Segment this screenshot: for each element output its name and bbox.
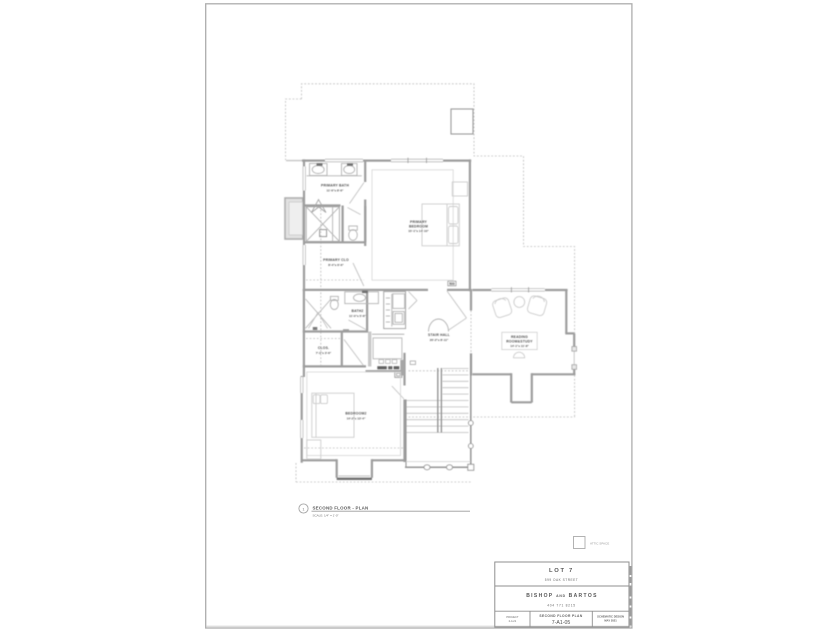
svg-text:PRIMARY BATH: PRIMARY BATH xyxy=(321,184,349,188)
svg-text:MAY 2021: MAY 2021 xyxy=(604,619,617,623)
svg-text:11'-6"x 8'-6": 11'-6"x 8'-6" xyxy=(327,188,345,192)
svg-text:2-4-21: 2-4-21 xyxy=(509,619,517,623)
svg-text:20'-2"x 8'-11": 20'-2"x 8'-11" xyxy=(430,338,449,342)
svg-text:14'-2"x 13'-4": 14'-2"x 13'-4" xyxy=(347,416,366,420)
svg-text:PRIMARY CLO: PRIMARY CLO xyxy=(323,258,349,262)
svg-text:599 OAK STREET: 599 OAK STREET xyxy=(545,578,578,582)
svg-text:8'-4"x 6'-6": 8'-4"x 6'-6" xyxy=(328,263,344,267)
svg-text:PROJECT: PROJECT xyxy=(506,615,519,619)
svg-text:ROOM&STUDY: ROOM&STUDY xyxy=(506,340,533,344)
svg-text:CLOS.: CLOS. xyxy=(318,346,329,350)
svg-text:READING: READING xyxy=(511,335,528,339)
svg-text:SCHEMATIC DESIGN: SCHEMATIC DESIGN xyxy=(597,615,624,619)
svg-text:SECOND FLOOR - PLAN: SECOND FLOOR - PLAN xyxy=(313,506,369,511)
svg-text:BISHOP AND BARTOS: BISHOP AND BARTOS xyxy=(526,593,598,599)
svg-text:7-A1-05: 7-A1-05 xyxy=(552,620,571,626)
svg-text:SECOND FLOOR PLAN: SECOND FLOOR PLAN xyxy=(539,614,582,618)
svg-text:7'-3"x 3'-6": 7'-3"x 3'-6" xyxy=(316,351,332,355)
svg-text:11'-0"x 5'-6": 11'-0"x 5'-6" xyxy=(349,314,367,318)
svg-text:SCALE: 1/4" = 1'-0": SCALE: 1/4" = 1'-0" xyxy=(313,514,339,518)
svg-text:BEDROOM: BEDROOM xyxy=(409,225,428,229)
svg-text:LOT 7: LOT 7 xyxy=(549,568,574,574)
svg-text:1: 1 xyxy=(302,506,305,511)
svg-text:ATTIC SPACE: ATTIC SPACE xyxy=(590,542,609,546)
svg-text:BEDROOM2: BEDROOM2 xyxy=(345,412,366,416)
svg-text:15'-1"x 14'-10": 15'-1"x 14'-10" xyxy=(408,229,429,233)
svg-text:STAIR HALL: STAIR HALL xyxy=(428,333,450,337)
svg-text:14'-1"x 11'-8": 14'-1"x 11'-8" xyxy=(510,344,529,348)
svg-text:500: 500 xyxy=(449,282,455,286)
svg-text:PRIMARY: PRIMARY xyxy=(410,220,427,224)
svg-text:BATH2: BATH2 xyxy=(351,309,363,313)
svg-text:404 771 8215: 404 771 8215 xyxy=(547,604,576,608)
